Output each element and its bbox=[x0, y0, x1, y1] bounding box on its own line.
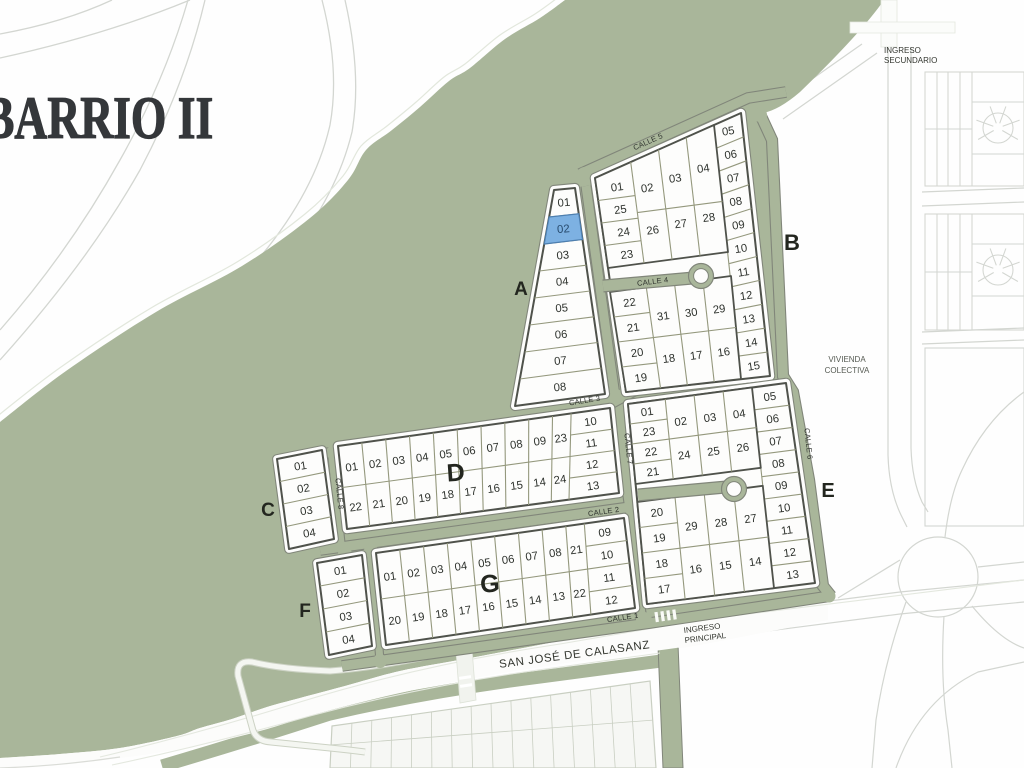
svg-text:07: 07 bbox=[486, 442, 500, 456]
svg-text:01: 01 bbox=[383, 570, 397, 584]
svg-text:01: 01 bbox=[557, 197, 571, 210]
svg-text:01: 01 bbox=[610, 181, 624, 195]
svg-text:28: 28 bbox=[714, 516, 728, 530]
svg-text:18: 18 bbox=[662, 353, 676, 367]
svg-text:01: 01 bbox=[293, 460, 307, 474]
svg-text:12: 12 bbox=[585, 458, 599, 472]
svg-text:20: 20 bbox=[630, 347, 644, 361]
svg-text:07: 07 bbox=[554, 355, 568, 368]
svg-text:10: 10 bbox=[584, 416, 598, 430]
svg-text:24: 24 bbox=[617, 226, 631, 240]
svg-text:23: 23 bbox=[554, 432, 568, 446]
svg-text:11: 11 bbox=[737, 266, 750, 280]
svg-text:11: 11 bbox=[603, 572, 616, 586]
svg-text:22: 22 bbox=[644, 446, 658, 460]
svg-text:13: 13 bbox=[786, 569, 800, 583]
svg-text:INGRESO: INGRESO bbox=[884, 46, 921, 55]
svg-text:29: 29 bbox=[712, 303, 726, 317]
svg-text:11: 11 bbox=[585, 437, 598, 451]
svg-text:15: 15 bbox=[747, 360, 761, 374]
svg-text:29: 29 bbox=[684, 520, 698, 534]
svg-text:16: 16 bbox=[482, 601, 496, 615]
svg-text:10: 10 bbox=[734, 242, 748, 256]
svg-text:05: 05 bbox=[763, 391, 777, 405]
svg-text:27: 27 bbox=[674, 218, 688, 232]
svg-text:09: 09 bbox=[731, 219, 745, 233]
svg-text:15: 15 bbox=[510, 479, 524, 493]
svg-text:09: 09 bbox=[533, 435, 547, 449]
svg-text:02: 02 bbox=[557, 223, 571, 236]
svg-text:14: 14 bbox=[533, 476, 547, 490]
svg-text:03: 03 bbox=[556, 249, 570, 262]
svg-text:07: 07 bbox=[769, 435, 783, 449]
svg-text:04: 04 bbox=[696, 162, 710, 176]
svg-text:19: 19 bbox=[411, 611, 425, 625]
svg-text:22: 22 bbox=[623, 296, 637, 310]
svg-text:17: 17 bbox=[464, 486, 478, 500]
svg-text:02: 02 bbox=[407, 567, 421, 581]
svg-text:04: 04 bbox=[732, 408, 746, 422]
svg-text:A: A bbox=[514, 279, 528, 300]
svg-text:27: 27 bbox=[744, 513, 758, 527]
svg-text:12: 12 bbox=[604, 594, 618, 608]
svg-text:SECUNDARIO: SECUNDARIO bbox=[884, 56, 937, 65]
svg-text:B: B bbox=[784, 230, 800, 255]
svg-text:21: 21 bbox=[372, 498, 386, 512]
svg-text:10: 10 bbox=[600, 549, 614, 563]
svg-text:04: 04 bbox=[341, 633, 355, 647]
svg-text:01: 01 bbox=[640, 406, 654, 420]
svg-text:15: 15 bbox=[505, 597, 519, 611]
svg-text:20: 20 bbox=[395, 495, 409, 509]
svg-text:21: 21 bbox=[626, 322, 640, 336]
svg-text:23: 23 bbox=[642, 426, 656, 440]
svg-text:24: 24 bbox=[553, 474, 567, 488]
svg-text:08: 08 bbox=[548, 547, 562, 561]
svg-text:13: 13 bbox=[586, 480, 600, 494]
svg-text:05: 05 bbox=[555, 302, 569, 315]
svg-text:02: 02 bbox=[674, 416, 688, 430]
svg-text:06: 06 bbox=[462, 445, 476, 459]
svg-text:17: 17 bbox=[657, 583, 671, 597]
svg-text:06: 06 bbox=[501, 553, 515, 567]
svg-text:25: 25 bbox=[613, 203, 627, 217]
svg-text:G: G bbox=[479, 569, 500, 598]
svg-text:03: 03 bbox=[392, 455, 406, 469]
svg-text:22: 22 bbox=[349, 501, 363, 515]
svg-text:18: 18 bbox=[441, 489, 455, 503]
svg-text:14: 14 bbox=[748, 556, 762, 570]
svg-text:04: 04 bbox=[415, 451, 429, 465]
svg-text:06: 06 bbox=[554, 329, 568, 342]
svg-text:12: 12 bbox=[739, 289, 753, 303]
svg-text:26: 26 bbox=[736, 441, 750, 455]
svg-text:12: 12 bbox=[783, 546, 797, 560]
svg-text:05: 05 bbox=[478, 557, 492, 571]
svg-text:21: 21 bbox=[646, 466, 660, 480]
svg-text:14: 14 bbox=[528, 594, 542, 608]
svg-text:20: 20 bbox=[388, 615, 402, 629]
svg-text:C: C bbox=[261, 500, 275, 521]
svg-text:08: 08 bbox=[509, 438, 523, 452]
svg-text:13: 13 bbox=[552, 590, 566, 604]
svg-text:15: 15 bbox=[718, 559, 732, 573]
svg-text:BARRIO II: BARRIO II bbox=[0, 85, 213, 151]
svg-text:18: 18 bbox=[655, 558, 669, 572]
svg-text:28: 28 bbox=[702, 211, 716, 225]
svg-text:20: 20 bbox=[650, 507, 664, 521]
svg-text:03: 03 bbox=[339, 610, 353, 624]
svg-text:06: 06 bbox=[766, 413, 780, 427]
svg-text:19: 19 bbox=[418, 492, 432, 506]
svg-text:16: 16 bbox=[487, 482, 501, 496]
svg-text:24: 24 bbox=[677, 449, 691, 463]
svg-text:03: 03 bbox=[430, 564, 444, 578]
svg-text:04: 04 bbox=[302, 527, 316, 541]
svg-text:F: F bbox=[299, 601, 311, 622]
svg-text:31: 31 bbox=[656, 310, 670, 324]
svg-text:11: 11 bbox=[780, 524, 793, 538]
svg-text:COLECTIVA: COLECTIVA bbox=[825, 366, 870, 375]
svg-text:VIVIENDA: VIVIENDA bbox=[828, 355, 866, 364]
svg-text:19: 19 bbox=[652, 532, 666, 546]
svg-text:19: 19 bbox=[634, 372, 648, 386]
svg-text:06: 06 bbox=[724, 148, 738, 162]
svg-text:17: 17 bbox=[458, 604, 472, 618]
svg-text:23: 23 bbox=[620, 248, 634, 262]
svg-text:D: D bbox=[446, 458, 466, 487]
svg-text:18: 18 bbox=[435, 608, 449, 622]
svg-text:08: 08 bbox=[771, 457, 785, 471]
svg-text:16: 16 bbox=[717, 346, 731, 360]
svg-text:02: 02 bbox=[368, 458, 382, 472]
svg-text:08: 08 bbox=[729, 195, 743, 209]
svg-text:02: 02 bbox=[640, 182, 654, 196]
svg-text:22: 22 bbox=[573, 587, 587, 601]
svg-text:03: 03 bbox=[668, 172, 682, 186]
svg-text:01: 01 bbox=[345, 461, 359, 475]
svg-text:16: 16 bbox=[689, 563, 703, 577]
svg-text:21: 21 bbox=[569, 544, 583, 558]
svg-text:25: 25 bbox=[707, 445, 721, 459]
svg-text:03: 03 bbox=[299, 505, 313, 519]
svg-text:04: 04 bbox=[555, 276, 569, 289]
svg-text:02: 02 bbox=[336, 587, 350, 601]
svg-text:14: 14 bbox=[744, 336, 758, 350]
svg-text:E: E bbox=[821, 480, 834, 502]
svg-text:02: 02 bbox=[296, 482, 310, 496]
svg-text:10: 10 bbox=[777, 502, 791, 516]
svg-text:09: 09 bbox=[598, 526, 612, 540]
svg-text:03: 03 bbox=[703, 412, 717, 426]
svg-text:09: 09 bbox=[774, 480, 788, 494]
svg-text:13: 13 bbox=[742, 313, 756, 327]
svg-text:07: 07 bbox=[726, 172, 740, 186]
svg-text:01: 01 bbox=[333, 565, 347, 579]
svg-text:30: 30 bbox=[684, 307, 698, 321]
svg-text:08: 08 bbox=[553, 381, 567, 394]
svg-text:04: 04 bbox=[454, 560, 468, 574]
svg-text:26: 26 bbox=[646, 224, 660, 238]
svg-text:05: 05 bbox=[721, 125, 735, 139]
svg-text:17: 17 bbox=[689, 349, 703, 363]
svg-text:07: 07 bbox=[525, 550, 539, 564]
